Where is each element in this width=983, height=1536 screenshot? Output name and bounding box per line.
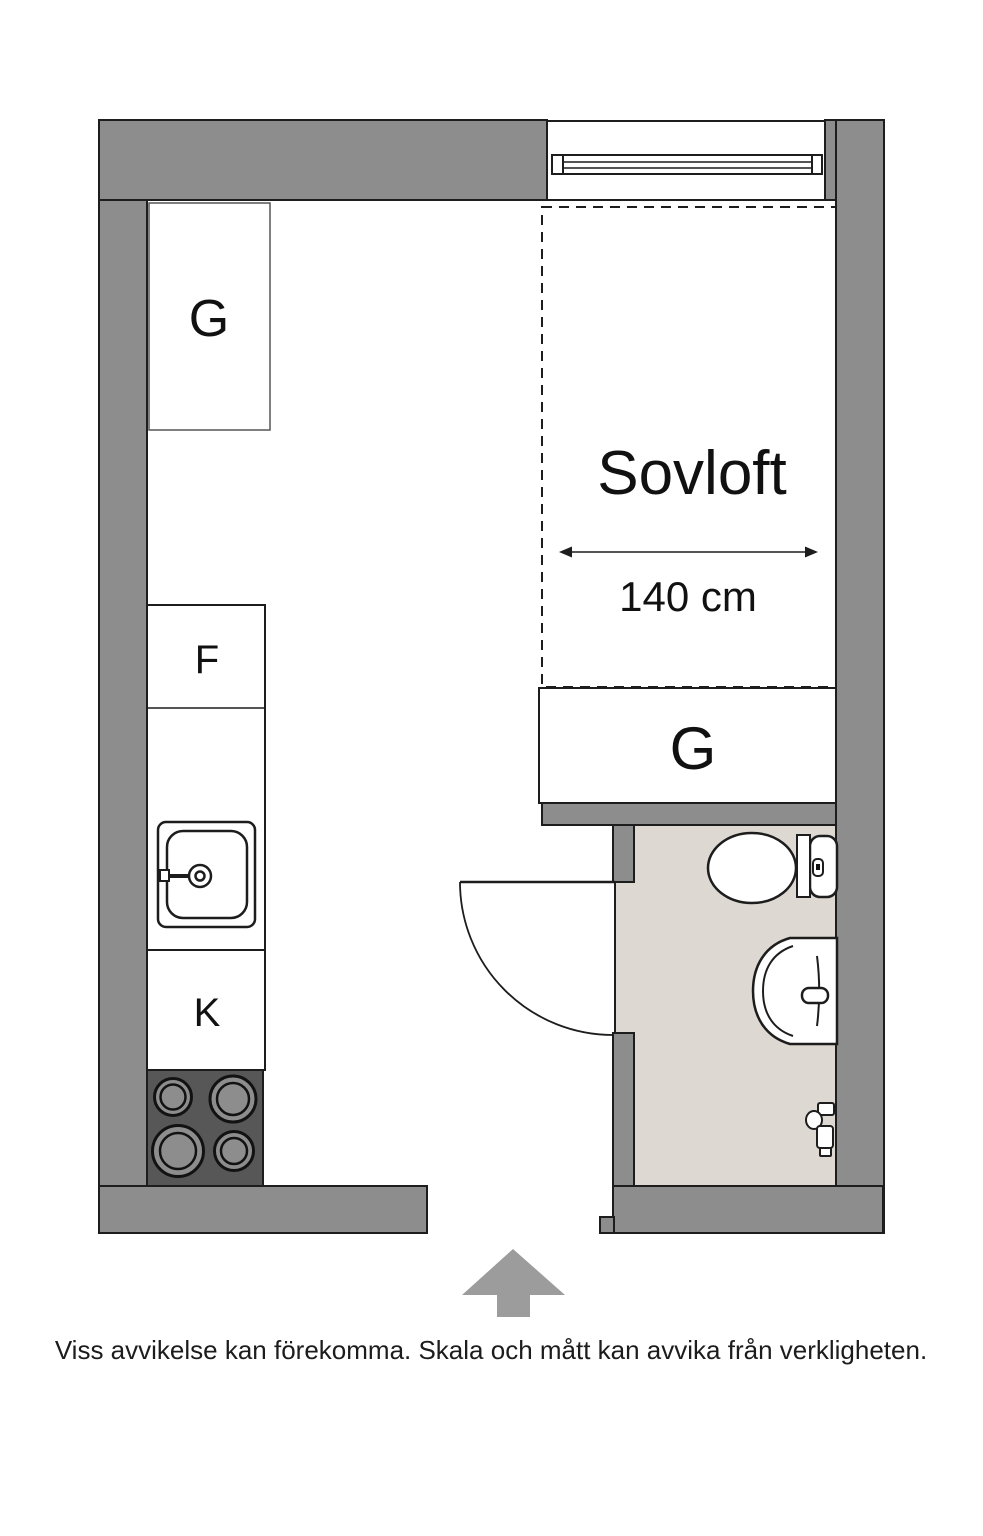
washbasin-icon [753,938,837,1044]
bathroom-door [460,882,615,1035]
closet-top-label: G [189,290,229,348]
loft-room-label: Sovloft [597,439,787,508]
wall-bottom-left [99,1186,427,1233]
stove-label: K [194,991,221,1035]
entrance-arrow-icon [462,1249,565,1317]
wall-bathroom-left-upper [613,825,634,882]
closet-loft-label: G [670,715,717,782]
drain-inner [196,872,205,881]
wall-bathroom-top [542,803,836,825]
wall-tap-foot [820,1148,831,1156]
toilet-icon [708,833,837,903]
floorplan-page: G F K Sovloft 140 cm G Viss avvikelse ka… [0,0,983,1536]
dimension-arrowhead-right [805,547,818,558]
wall-bottom-right-foot [600,1217,614,1233]
loft-width-label: 140 cm [619,573,757,620]
disclaimer-text: Viss avvikelse kan förekomma. Skala och … [55,1335,927,1365]
toilet-tank-front [797,835,810,897]
washbasin-tap-handle [802,988,828,1003]
stove-icon [147,1070,263,1186]
toilet-flush-dot [816,864,820,870]
dimension-arrow [559,547,818,558]
faucet-base [160,870,169,881]
door-swing-arc [460,882,613,1035]
wall-bottom-right [613,1186,883,1233]
wall-right [836,120,884,1233]
fridge-label: F [195,638,219,682]
window-icon [547,121,825,200]
toilet-bowl [708,833,796,903]
wall-tap-body [817,1126,833,1148]
wall-left [99,120,147,1233]
floorplan-canvas: G F K Sovloft 140 cm G Viss avvikelse ka… [0,0,983,1536]
wall-top-left [99,120,547,200]
wall-bathroom-left-lower [613,1033,634,1186]
dimension-arrowhead-left [559,547,572,558]
kitchen-sink-icon [158,822,255,927]
window-frame [552,155,822,174]
